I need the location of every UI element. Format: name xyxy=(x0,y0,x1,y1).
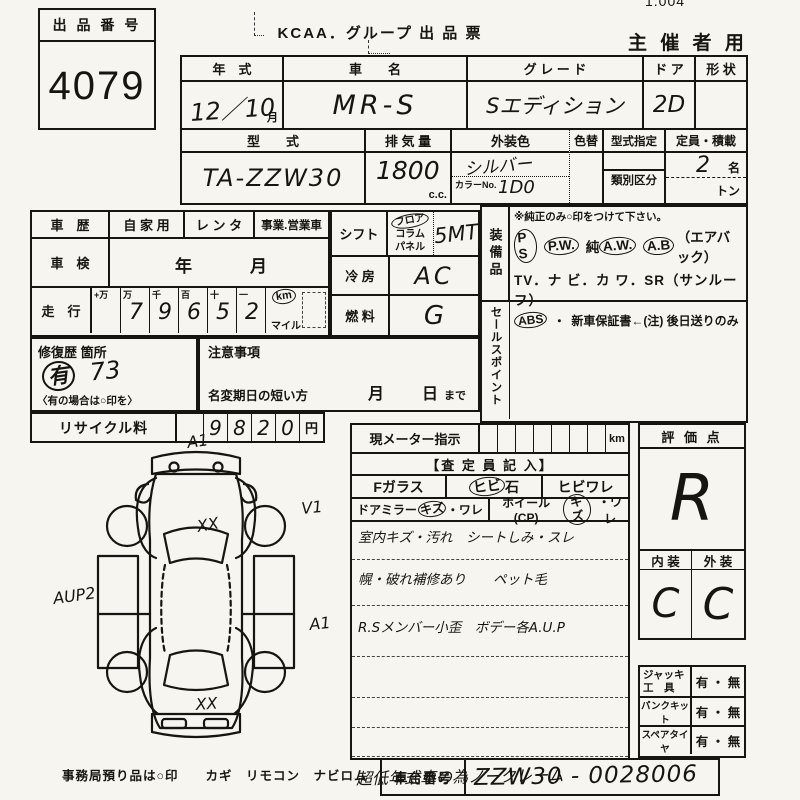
mileage-stamp-box xyxy=(302,292,326,328)
color-no-label: カラーNo. xyxy=(455,178,497,191)
class-header: 類別区分 xyxy=(604,169,664,189)
inspection-year-unit: 年 xyxy=(175,252,192,277)
chassis-number-box: 車台番号 ZZW30 - 0028006 xyxy=(380,758,720,796)
equipment-pw-circled: P.W. xyxy=(543,236,579,257)
type-designation-header: 型式指定 xyxy=(604,130,664,153)
flat-kit-label: パンクキット xyxy=(640,698,692,725)
score-label: 評 価 点 xyxy=(640,425,744,449)
lot-number-label: 出 品 番 号 xyxy=(40,10,154,42)
name-value: MR-S xyxy=(284,82,468,128)
color-header: 外装色 xyxy=(452,130,569,153)
displacement-header: 排 気 量 xyxy=(366,130,450,153)
flat-kit-options: 有 ・ 無 xyxy=(692,698,744,725)
shift-header: シフト xyxy=(332,212,388,255)
fuel-value: G xyxy=(390,296,478,335)
right-damage-mark: A1 xyxy=(307,613,331,634)
year-unit: 月 xyxy=(267,109,278,125)
model-value: TA-ZZW30 xyxy=(182,153,364,203)
rear-damage-mark: XX xyxy=(194,693,219,714)
spare-tire-label: スペアタイヤ xyxy=(640,727,692,754)
meter-digit-box xyxy=(534,425,552,452)
rear-bumper xyxy=(152,714,240,737)
mileage-header: 走 行 xyxy=(32,288,92,333)
meter-digit-box xyxy=(570,425,588,452)
shift-panel-option: パネル xyxy=(395,241,425,254)
history-rental: レ ン タ xyxy=(185,212,255,237)
meter-label: 現メーター指示 xyxy=(352,425,478,452)
rename-day: 日 xyxy=(422,380,438,404)
windshield xyxy=(164,528,228,564)
rename-suffix: まで xyxy=(444,387,466,403)
front-bumper xyxy=(152,452,240,474)
lot-number-value: 4079 xyxy=(40,42,154,130)
interior-grade: C xyxy=(640,570,692,638)
door-value: 2D xyxy=(644,82,696,128)
chassis-value: ZZW30 - 0028006 xyxy=(466,758,719,796)
right-side-panel xyxy=(254,556,294,668)
repair-value: 73 xyxy=(89,355,122,386)
displacement-unit: c.c. xyxy=(429,189,447,201)
year-header: 年 式 xyxy=(182,57,284,80)
history-header: 車 歴 xyxy=(32,212,110,237)
km-unit-circled: km xyxy=(271,287,297,305)
assessor-header: 【査 定 員 記 入】 xyxy=(352,454,628,476)
shift-value: 5MT xyxy=(432,210,481,257)
shape-value-empty xyxy=(696,82,746,128)
meter-digit-box xyxy=(552,425,570,452)
caution-label: 注意事項 xyxy=(200,339,478,361)
organizer-label: 主 催 者 用 xyxy=(628,28,758,55)
capacity-value: 2 xyxy=(696,153,710,178)
registration-mark-right xyxy=(368,40,390,54)
equipment-jun-label: 純 xyxy=(586,236,600,256)
color-no-value: 1D0 xyxy=(498,177,535,198)
ac-value: AC xyxy=(390,257,478,294)
fuel-header: 燃 料 xyxy=(332,296,390,335)
equipment-aw-circled: A.W. xyxy=(599,236,637,257)
mileage-digit: 5 xyxy=(216,300,230,325)
fglass-label: Fガラス xyxy=(352,476,447,497)
registration-mark-left xyxy=(254,12,264,36)
repair-hint: 〈有の場合は○印を〉 xyxy=(37,393,138,408)
right-front-damage-mark: V1 xyxy=(300,497,323,518)
meter-digit-box xyxy=(498,425,516,452)
meter-digit-box xyxy=(480,425,498,452)
mileage-digit: 6 xyxy=(187,300,201,325)
office-note: 事務局預り品は○印 カギ リモコン ナビロム xyxy=(62,765,368,784)
assessor-note-line: R.Sメンバー小歪 ボデー各A.U.P xyxy=(352,606,628,657)
jack-options: 有 ・ 無 xyxy=(692,667,744,696)
mileage-digit: 7 xyxy=(129,300,143,325)
inspection-month-unit: 月 xyxy=(250,252,267,277)
meter-unit: km xyxy=(606,425,628,452)
model-header: 型 式 xyxy=(182,130,364,153)
mileage-digit: 9 xyxy=(158,300,172,325)
page-corner-number: 1.004 xyxy=(645,0,685,9)
shape-header: 形 状 xyxy=(696,57,746,80)
assessor-note-line-empty xyxy=(352,728,628,757)
assessor-note-line-empty xyxy=(352,698,628,728)
history-business: 事業.営業車 xyxy=(255,212,328,237)
assessor-note-line: 室内キズ・汚れ シートしみ・スレ xyxy=(352,522,628,560)
jack-label-line2: 工 具 xyxy=(643,682,690,695)
sales-point-label: セールスポイント xyxy=(488,306,504,419)
rename-deadline-label: 名変期日の短い方 xyxy=(208,385,308,404)
meter-digit-box xyxy=(516,425,534,452)
mirror-kizu-circled: キズ xyxy=(417,500,447,519)
ac-header: 冷 房 xyxy=(332,257,390,294)
ton-unit: トン xyxy=(716,182,740,199)
name-header: 車 名 xyxy=(284,57,468,80)
history-table: 車 歴 自 家 用 レ ン タ 事業.営業車 車 検 年 月 走 行 +万 万 … xyxy=(30,210,330,337)
assessor-note-line-empty xyxy=(352,657,628,698)
interior-label: 内 装 xyxy=(640,551,692,569)
repair-yes-circled: 有 xyxy=(40,359,77,394)
capacity-header: 定員・積載 xyxy=(666,130,746,153)
front-damage-mark: A1 xyxy=(185,432,210,452)
displacement-value: 1800 xyxy=(376,156,440,185)
wheel-label: ホイール(CP) xyxy=(490,494,562,525)
mile-unit: マイル xyxy=(271,317,301,332)
score-value: R xyxy=(640,449,744,549)
spec-table: シフト フロア コラム パネル 5MT 冷 房 AC 燃 料 G xyxy=(330,210,480,337)
tools-panel: ジャッキ 工 具 有 ・ 無 パンクキット 有 ・ 無 スペアタイヤ 有 ・ 無 xyxy=(638,665,746,758)
equipment-box: 装備品 ※純正のみ○印をつけて下さい。 P S P.W. 純A.W. A.B （… xyxy=(480,205,748,423)
equipment-label: 装備品 xyxy=(486,228,505,279)
car-damage-diagram: A1 V1 XX AUP2 A1 XX xyxy=(52,432,348,754)
door-header: ド ア xyxy=(644,57,696,80)
equipment-note: ※純正のみ○印をつけて下さい。 xyxy=(514,209,742,224)
grade-value: Sエディション xyxy=(468,82,644,128)
caution-box: 注意事項 名変期日の短い方 月 日 まで xyxy=(198,337,480,412)
exterior-label: 外 装 xyxy=(692,551,744,569)
repair-history-box: 修復歴 箇所 有 73 〈有の場合は○印を〉 xyxy=(30,337,198,412)
rename-month: 月 xyxy=(368,380,384,404)
shift-column-option: コラム xyxy=(395,228,425,241)
meter-digit-box xyxy=(588,425,606,452)
mileage-digit-header: +万 xyxy=(94,288,108,301)
mileage-digit: 2 xyxy=(245,300,259,325)
spare-tire-options: 有 ・ 無 xyxy=(692,727,744,754)
rear-window xyxy=(164,651,228,691)
recolor-header: 色替 xyxy=(570,130,602,153)
vehicle-table: 年 式 車 名 グ レ ー ド ド ア 形 状 12／10 月 MR-S Sエデ… xyxy=(180,55,748,205)
exterior-grade: C xyxy=(692,570,744,638)
inspection-header: 車 検 xyxy=(32,239,110,286)
equipment-ab-suffix: （エアバック） xyxy=(677,226,742,266)
left-side-panel xyxy=(98,556,138,668)
mirror-suffix: ・ワレ xyxy=(447,501,483,518)
left-damage-mark: AUP2 xyxy=(52,583,97,608)
grade-header: グ レ ー ド xyxy=(468,57,644,80)
evaluation-panel: 評 価 点 R 内 装 外 装 C C xyxy=(638,423,746,640)
auction-sheet: 1.004 出 品 番 号 4079 KCAA．グループ 出 品 票 主 催 者… xyxy=(0,0,800,800)
assessor-note-line: 幌・破れ補修あり ペット毛 xyxy=(352,560,628,606)
mirror-label: ドアミラー xyxy=(357,501,417,518)
wheel-suffix: ・ワレ xyxy=(592,493,628,527)
jack-label-line1: ジャッキ xyxy=(643,669,690,682)
year-value: 12／10 xyxy=(189,87,276,128)
equipment-ps-circled: P S xyxy=(513,228,538,264)
lot-number-box: 出 品 番 号 4079 xyxy=(38,8,156,130)
capacity-unit: 名 xyxy=(728,159,740,176)
equipment-ab-circled: A.B xyxy=(643,236,675,256)
hood-damage-mark: XX xyxy=(194,513,221,536)
assessor-section: 現メーター指示 km 【査 定 員 記 入】 Fガラス ヒビ石 ヒビワレ ドアミ… xyxy=(350,423,630,760)
chassis-label: 車台番号 xyxy=(382,760,466,794)
history-private: 自 家 用 xyxy=(110,212,185,237)
